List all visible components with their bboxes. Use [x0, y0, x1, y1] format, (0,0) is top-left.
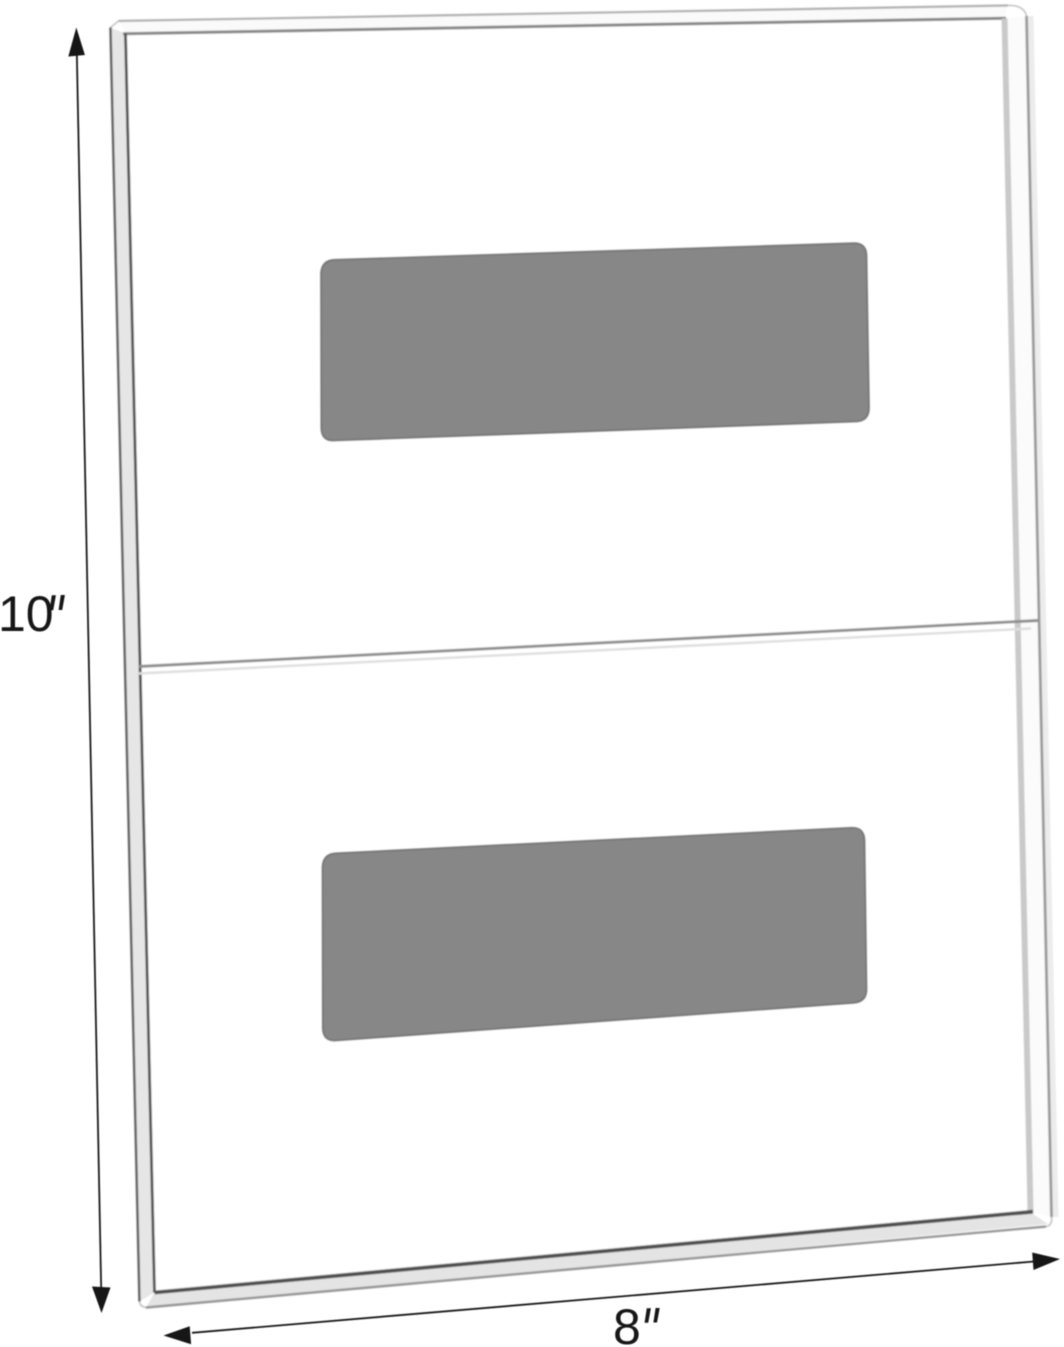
svg-text:8: 8: [613, 1299, 641, 1347]
svg-text:10: 10: [0, 586, 54, 642]
